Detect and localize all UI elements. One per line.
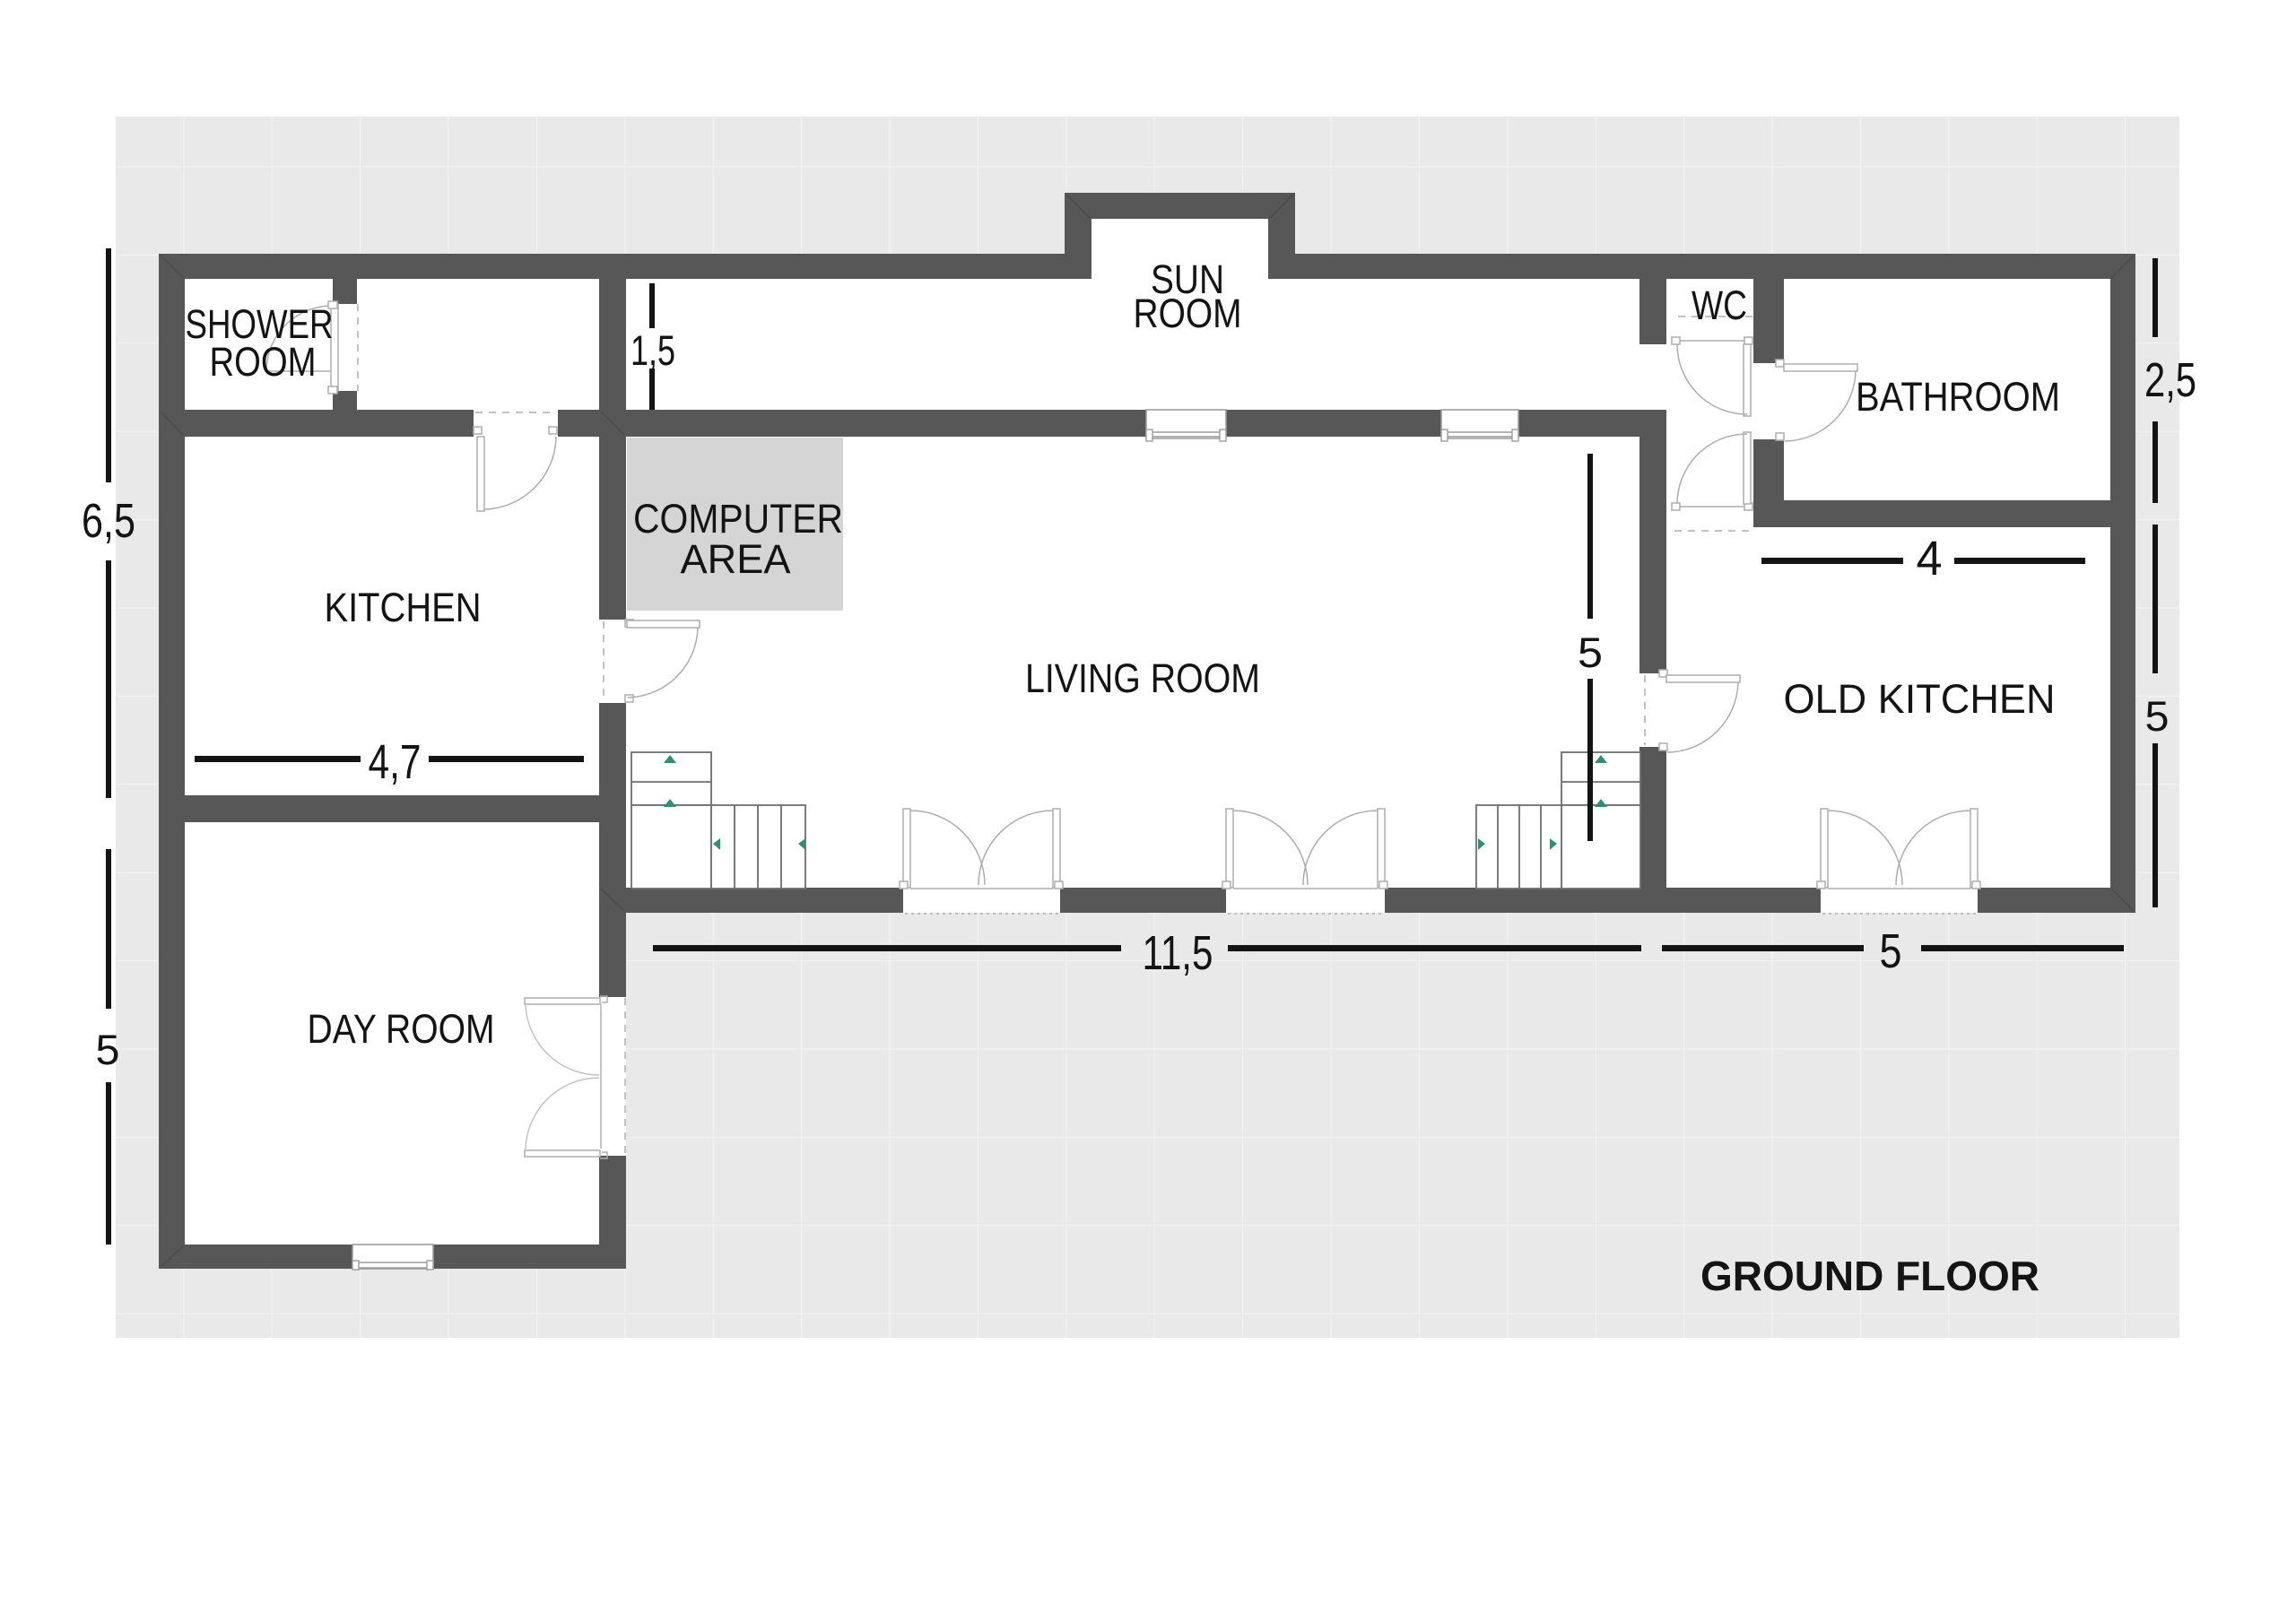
svg-text:5: 5	[1578, 629, 1603, 676]
svg-text:1,5: 1,5	[631, 326, 675, 374]
svg-text:5: 5	[96, 1026, 120, 1073]
svg-text:DAY ROOM: DAY ROOM	[308, 1006, 495, 1052]
svg-text:5: 5	[2145, 692, 2170, 740]
svg-text:5: 5	[1880, 924, 1902, 978]
svg-text:ROOM: ROOM	[210, 339, 317, 385]
svg-text:COMPUTER: COMPUTER	[633, 496, 843, 542]
svg-text:ROOM: ROOM	[1134, 291, 1242, 336]
svg-text:AREA: AREA	[681, 536, 791, 582]
svg-text:6,5: 6,5	[82, 494, 135, 548]
svg-text:OLD KITCHEN: OLD KITCHEN	[1784, 676, 2056, 722]
svg-text:BATHROOM: BATHROOM	[1856, 374, 2060, 420]
svg-text:4,7: 4,7	[369, 735, 422, 789]
svg-text:2,5: 2,5	[2144, 353, 2196, 407]
svg-text:WC: WC	[1692, 282, 1747, 328]
svg-text:4: 4	[1917, 532, 1943, 585]
svg-text:LIVING ROOM: LIVING ROOM	[1025, 655, 1260, 701]
svg-text:KITCHEN: KITCHEN	[325, 585, 482, 630]
svg-text:11,5: 11,5	[1143, 926, 1213, 980]
svg-text:GROUND FLOOR: GROUND FLOOR	[1700, 1253, 2039, 1299]
